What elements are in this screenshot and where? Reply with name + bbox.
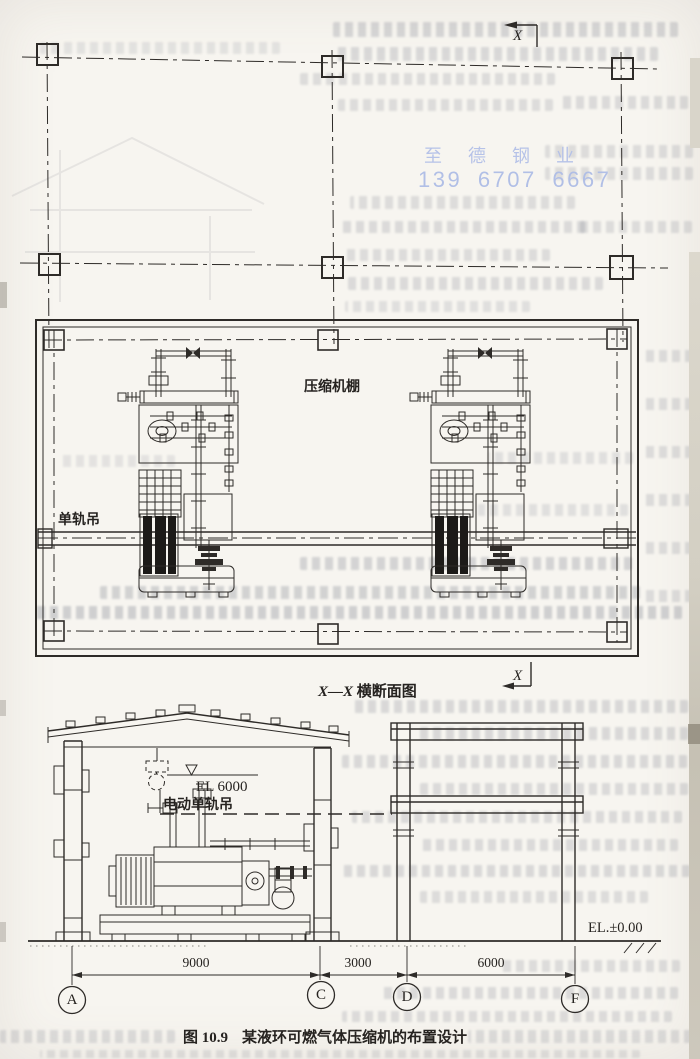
watermark-phone: 139 6707 6667 xyxy=(418,168,611,192)
figure-title: 某液环可燃气体压缩机的布置设计 xyxy=(242,1030,467,1046)
cross-section xyxy=(28,705,661,953)
page-edge-mark xyxy=(688,724,700,744)
dimension-9000: 9000 xyxy=(170,956,222,971)
grid-bubble-D: D xyxy=(393,983,421,1011)
grid-bubble-C: C xyxy=(307,981,335,1009)
watermark-company: 至德钢业 xyxy=(424,147,600,167)
grid-bubble-F: F xyxy=(561,985,589,1013)
pipe-rack-frame xyxy=(391,723,583,941)
figure-number: 图 10.9 xyxy=(183,1030,228,1046)
plan-label-monorail: 单轨吊 xyxy=(58,513,100,528)
elevation-label-hoist: EL 6000 xyxy=(196,779,248,796)
section-title: X—X 横断面图 xyxy=(318,684,417,701)
page-edge-mark xyxy=(0,700,6,716)
level-symbol xyxy=(186,765,197,775)
dimension-3000: 3000 xyxy=(332,956,384,971)
hoist-label: 电动单轨吊 xyxy=(163,798,233,813)
grid-bubble-A: A xyxy=(58,986,86,1014)
monorail-beam xyxy=(38,529,636,548)
bleed-through-drawing xyxy=(12,138,264,302)
dimension-6000: 6000 xyxy=(465,956,517,971)
section-title-text: 横断面图 xyxy=(357,684,417,700)
scanned-page: 至德钢业 139 6707 6667 压缩机棚 单轨吊 X X X—X 横断面图… xyxy=(0,0,700,1059)
elevation-label-ground: EL.±0.00 xyxy=(588,921,643,937)
page-edge-shadow xyxy=(690,58,700,148)
plan-view xyxy=(36,320,638,656)
section-letter-bottom: X xyxy=(513,668,522,685)
compressor-unit-plan xyxy=(118,347,238,597)
page-edge-mark xyxy=(0,922,6,942)
figure-caption: 图 10.9某液环可燃气体压缩机的布置设计 xyxy=(183,1030,481,1047)
plan-label-compressor-shed: 压缩机棚 xyxy=(304,380,360,395)
page-edge-mark xyxy=(0,282,7,308)
section-letter-top: X xyxy=(513,28,522,45)
page-edge-shadow xyxy=(689,252,700,1059)
section-title-letters: X—X xyxy=(318,684,353,700)
